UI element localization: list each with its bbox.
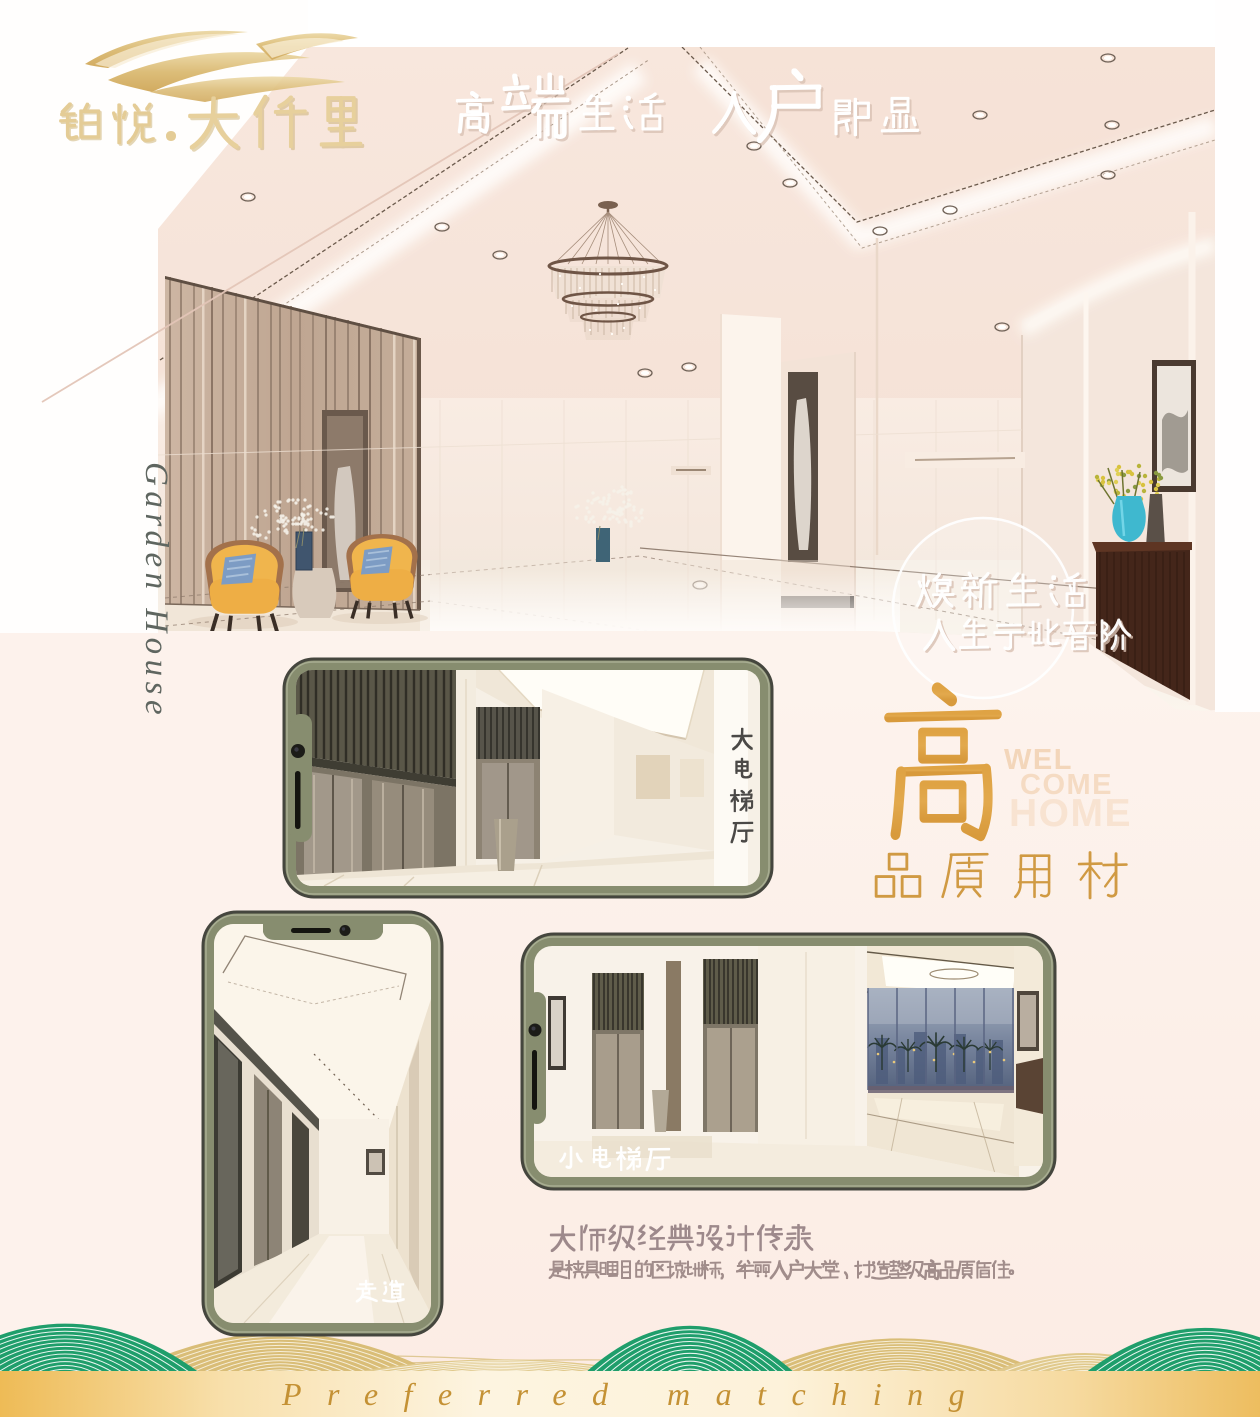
svg-text:Garden House: Garden House bbox=[138, 462, 174, 720]
svg-text:HOME: HOME bbox=[1009, 792, 1132, 835]
svg-text:Preferred matching: Preferred matching bbox=[281, 1376, 990, 1412]
